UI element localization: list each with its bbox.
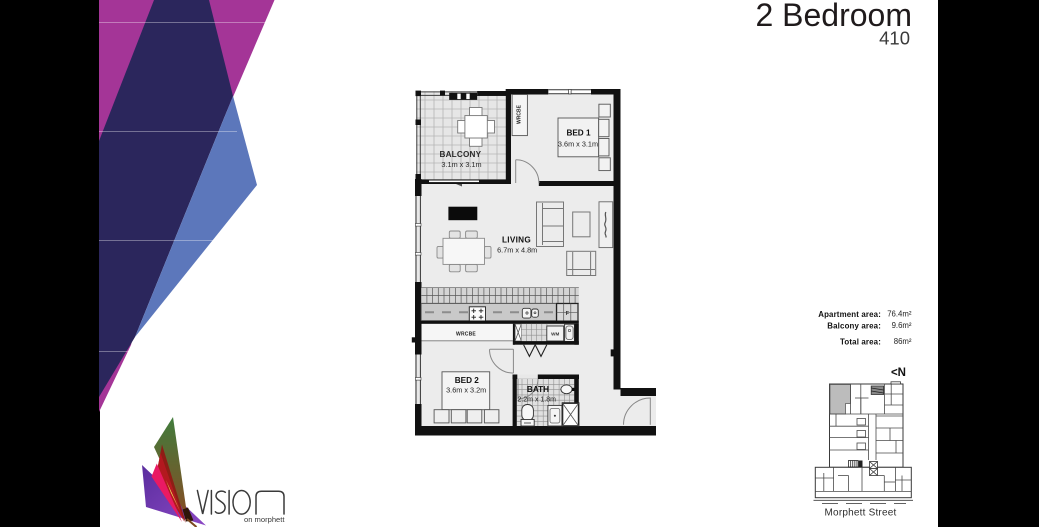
svg-text:BED 2: BED 2 bbox=[455, 376, 480, 385]
svg-text:Balcony area:: Balcony area: bbox=[827, 321, 881, 330]
svg-text:76.4m²: 76.4m² bbox=[887, 310, 912, 319]
svg-text:WRCBE: WRCBE bbox=[517, 104, 523, 124]
svg-text:on morphett: on morphett bbox=[244, 515, 285, 524]
svg-text:Total area:: Total area: bbox=[840, 337, 881, 346]
svg-text:BATH: BATH bbox=[527, 385, 549, 394]
svg-text:WM: WM bbox=[551, 332, 559, 337]
svg-text:BED 1: BED 1 bbox=[566, 129, 591, 138]
svg-text:9.6m²: 9.6m² bbox=[892, 321, 912, 330]
svg-text:<N: <N bbox=[891, 367, 906, 379]
svg-text:BALCONY: BALCONY bbox=[439, 150, 481, 159]
svg-text:3.6m x 3.2m: 3.6m x 3.2m bbox=[446, 385, 486, 394]
svg-text:3.6m x 3.1m: 3.6m x 3.1m bbox=[558, 140, 598, 149]
svg-text:6.7m x 4.8m: 6.7m x 4.8m bbox=[497, 246, 537, 255]
svg-text:Apartment area:: Apartment area: bbox=[818, 310, 881, 319]
svg-text:LIVING: LIVING bbox=[502, 235, 531, 244]
svg-text:WRCBE: WRCBE bbox=[456, 332, 476, 338]
svg-text:Morphett Street: Morphett Street bbox=[825, 508, 897, 519]
svg-text:410: 410 bbox=[879, 28, 910, 49]
svg-text:86m²: 86m² bbox=[894, 337, 912, 346]
svg-text:3.1m x 3.1m: 3.1m x 3.1m bbox=[441, 160, 481, 169]
svg-text:2.2m x 1.8m: 2.2m x 1.8m bbox=[517, 397, 556, 404]
